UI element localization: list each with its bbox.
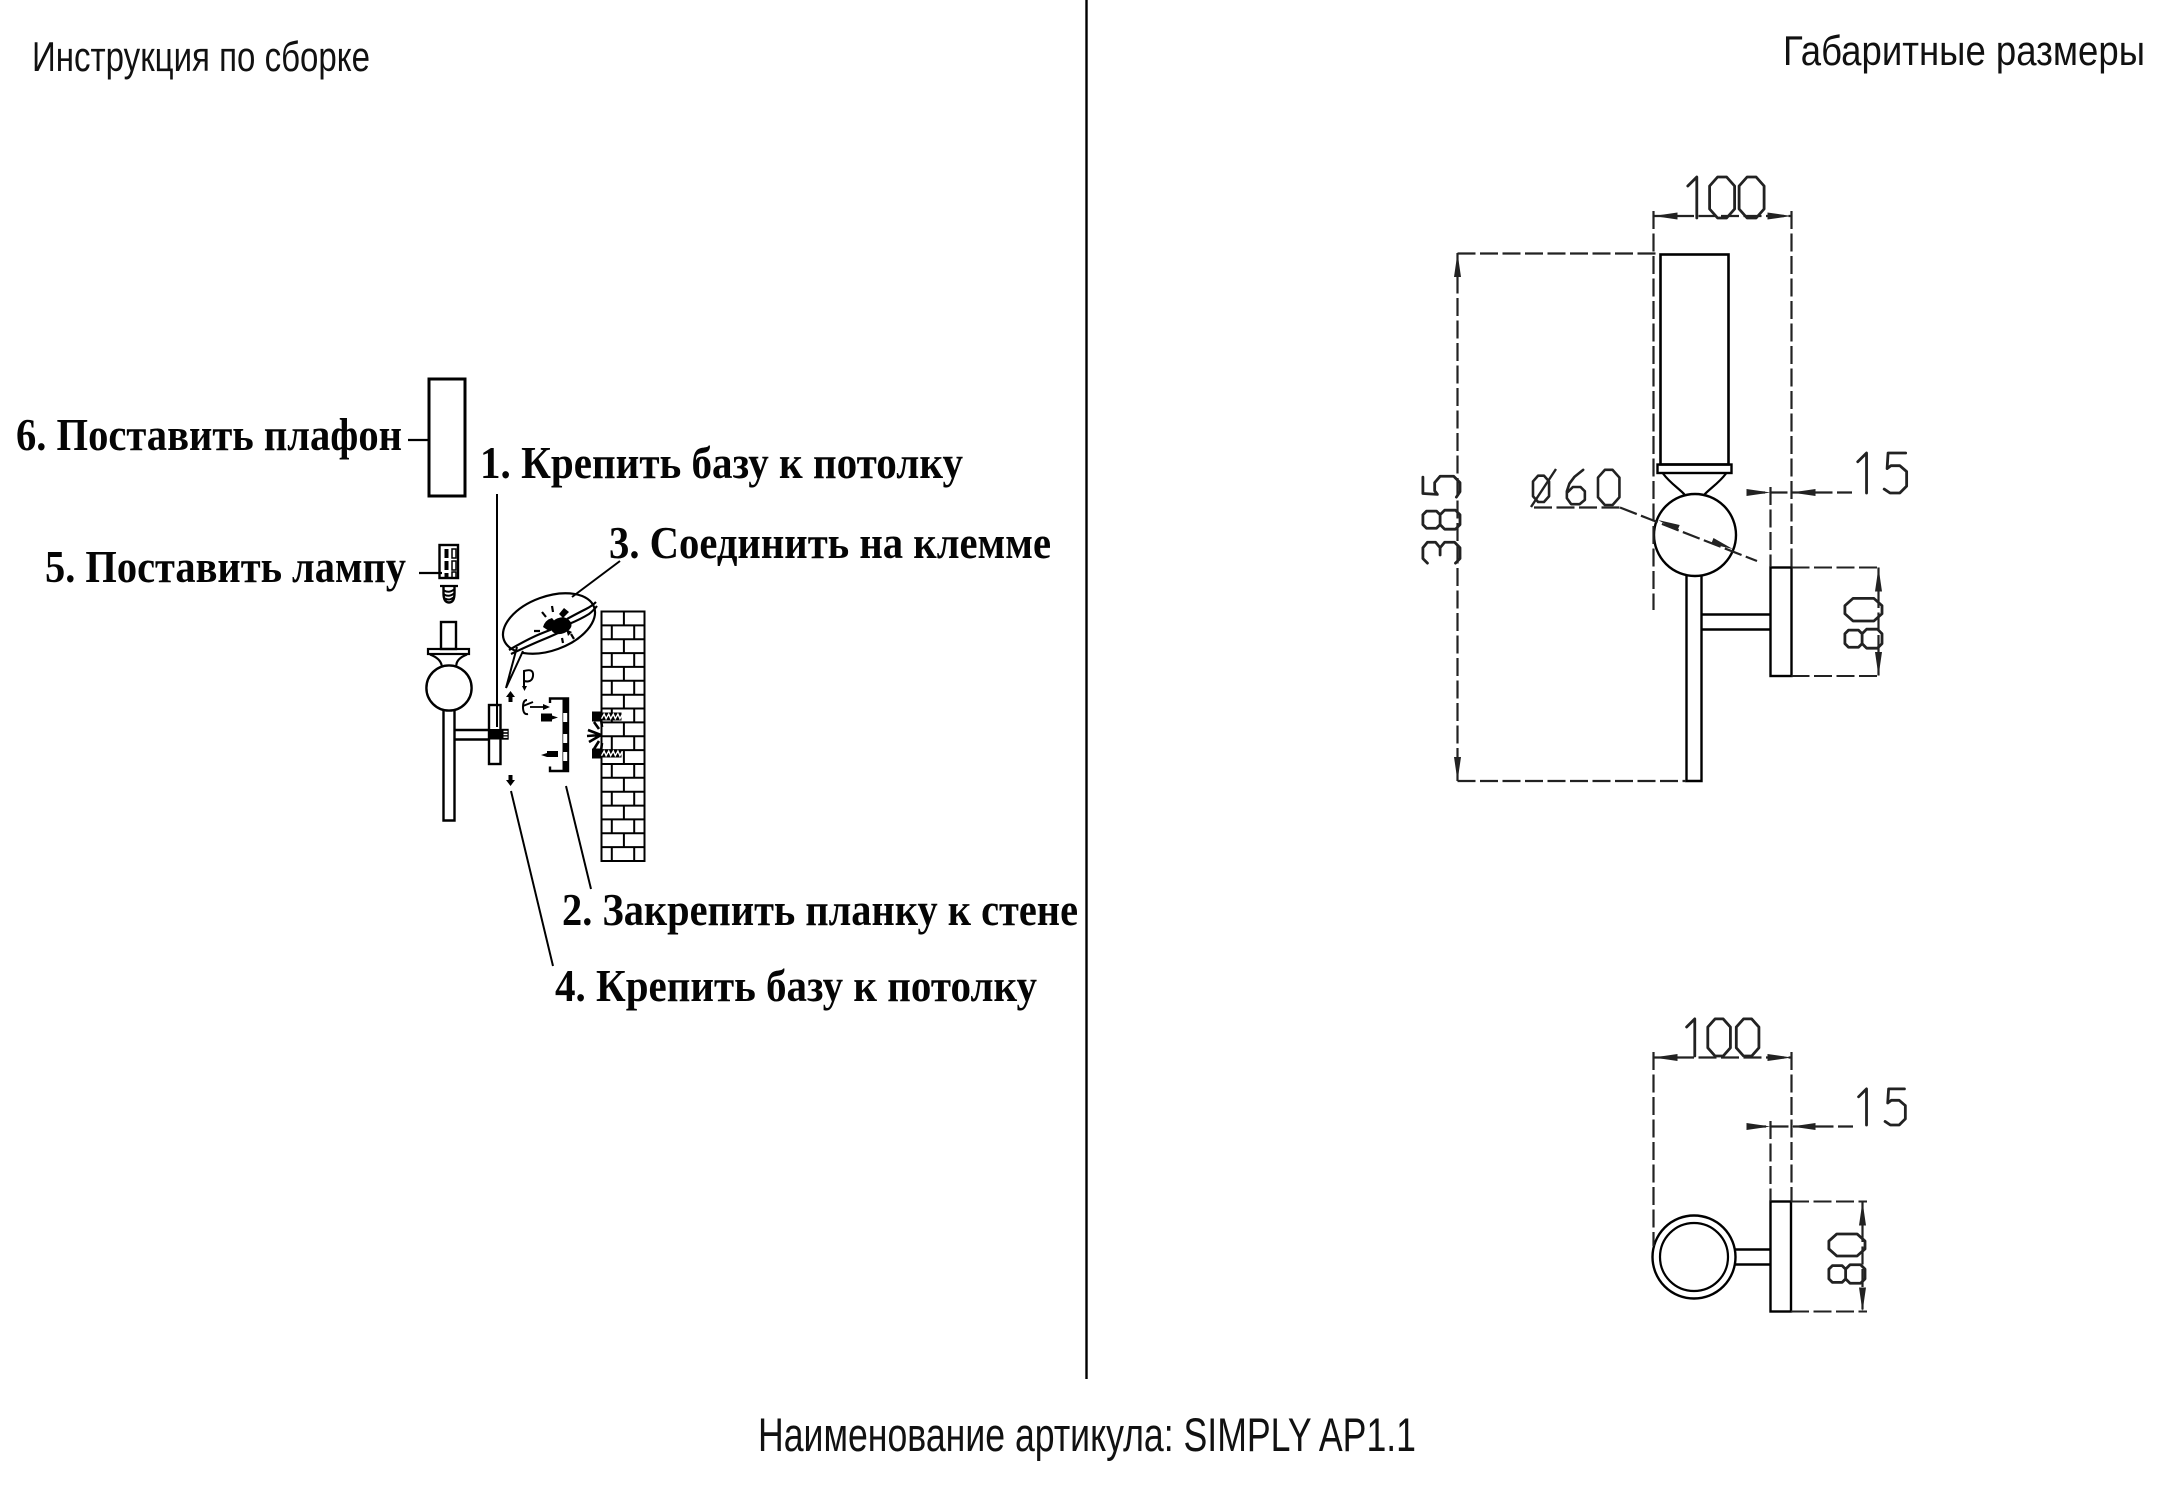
svg-text:Инструкция по сборке: Инструкция по сборке bbox=[32, 33, 370, 80]
svg-text:6. Поставить плафон: 6. Поставить плафон bbox=[16, 409, 402, 460]
svg-text:Габаритные размеры: Габаритные размеры bbox=[1783, 27, 2145, 74]
svg-text:2. Закрепить планку к стене: 2. Закрепить планку к стене bbox=[562, 884, 1078, 935]
svg-text:5. Поставить лампу: 5. Поставить лампу bbox=[45, 541, 406, 592]
svg-text:1. Крепить базу к потолку: 1. Крепить базу к потолку bbox=[480, 437, 963, 488]
svg-text:4. Крепить базу к потолку: 4. Крепить базу к потолку bbox=[555, 960, 1037, 1011]
svg-text:Наименование артикула: SIMPLY: Наименование артикула: SIMPLY AP1.1 bbox=[758, 1408, 1416, 1461]
svg-text:3. Соединить на клемме: 3. Соединить на клемме bbox=[609, 517, 1051, 568]
